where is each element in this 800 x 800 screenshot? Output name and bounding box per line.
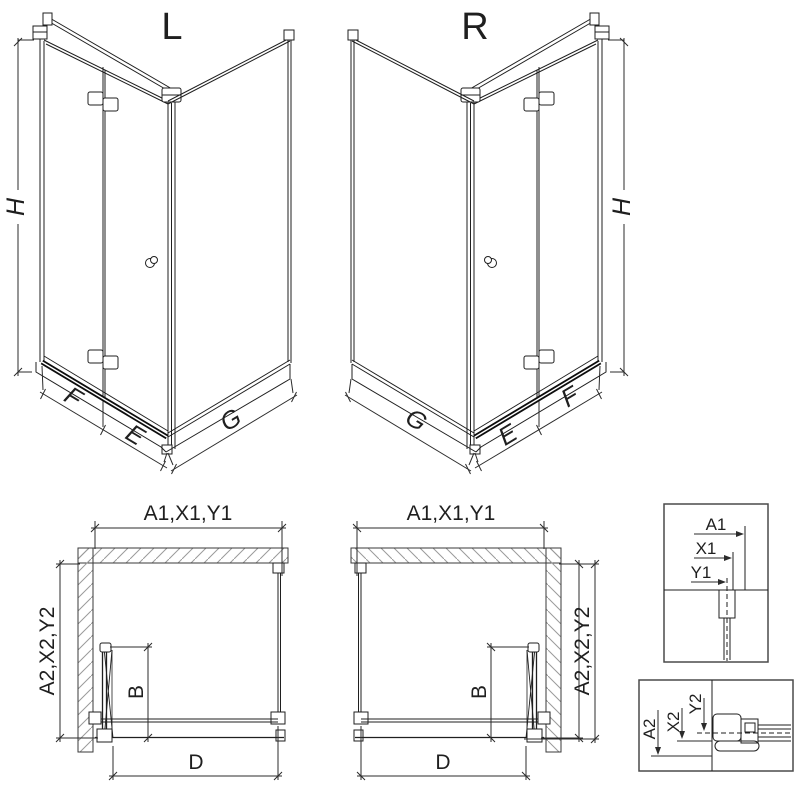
detail-label-y2: Y2: [686, 694, 705, 715]
plan-dim-label-top-right: A1,X1,Y1: [407, 502, 496, 525]
technical-drawing-page: L H F E G R H G E F A1,X1,Y1 A2,X2,Y2 B …: [0, 0, 800, 800]
l-plan-view: A1,X1,Y1 A2,X2,Y2 B D: [36, 502, 288, 780]
l-isometric-drawing: [14, 13, 297, 474]
wall-profile-detail-bottom: A2 X2 Y2: [639, 680, 793, 771]
dim-label-g-left: G: [215, 403, 246, 437]
variant-label-left: L: [161, 6, 182, 48]
plan-dim-label-side-right: A2,X2,Y2: [571, 607, 594, 696]
plan-dim-label-d-right: D: [435, 751, 450, 774]
detail-profile-section: [719, 590, 735, 660]
r-isometric-view: R H G E F: [345, 6, 636, 474]
r-plan-drawing: [351, 521, 583, 780]
l-isometric-view: L H F E G: [2, 6, 297, 474]
detail-label-a2: A2: [640, 719, 659, 740]
l-plan-drawing: [56, 521, 288, 780]
detail-label-x2: X2: [664, 712, 683, 733]
dim-label-h-left: H: [2, 197, 30, 216]
r-plan-view: A1,X1,Y1 A2,X2,Y2 B D: [351, 502, 599, 780]
variant-label-right: R: [461, 6, 488, 48]
r-isometric-drawing: [345, 13, 628, 474]
shower-enclosure-dimension-drawing: L H F E G R H G E F A1,X1,Y1 A2,X2,Y2 B …: [0, 0, 800, 800]
plan-dim-label-top-left: A1,X1,Y1: [144, 502, 233, 525]
detail-label-y1: Y1: [691, 563, 712, 582]
dim-label-g-right: G: [401, 403, 432, 437]
wall-profile-detail-top: A1 X1 Y1: [664, 504, 768, 662]
plan-dim-label-side-left: A2,X2,Y2: [36, 607, 59, 696]
plan-dim-label-b-right: B: [468, 685, 491, 699]
plan-dim-label-b-left: B: [125, 685, 148, 699]
detail-label-a1: A1: [706, 515, 727, 534]
dim-label-h-right: H: [608, 197, 636, 216]
detail-label-x1: X1: [696, 539, 717, 558]
plan-dim-label-d-left: D: [188, 751, 203, 774]
